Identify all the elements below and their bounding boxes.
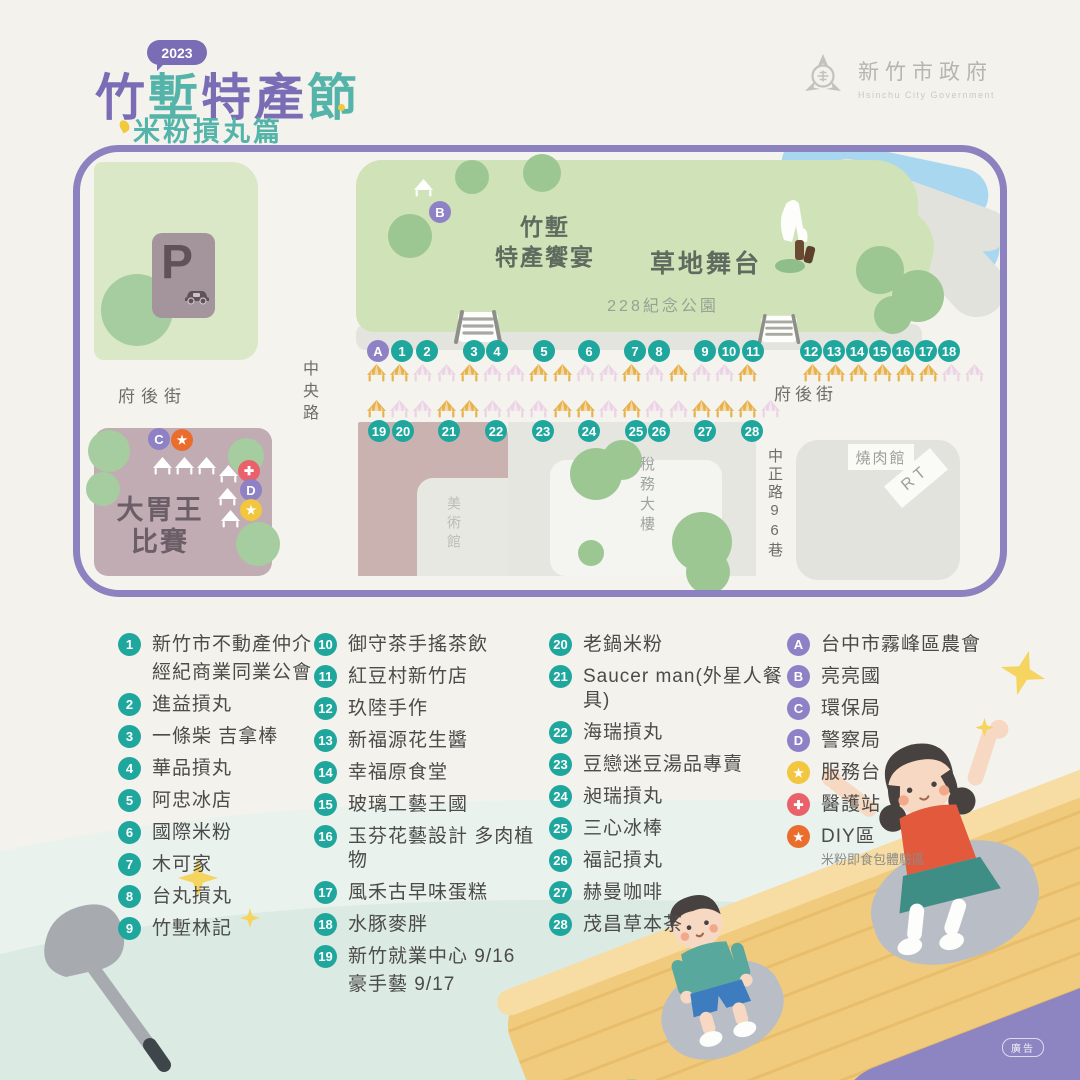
legend-column-3: 20老鍋米粉21Saucer man(外星人餐具)22海瑞摃丸23豆戀迷豆湯品專…	[549, 633, 789, 937]
legend-item-7: 7木可家	[118, 853, 324, 877]
star-icon: ★	[787, 825, 810, 848]
tent-icon	[825, 363, 846, 383]
legend-column-1: 1新竹市不動產仲介經紀商業同業公會2進益摃丸3一條柴 吉拿棒4華品摃丸5阿忠冰店…	[118, 633, 324, 941]
legend-item-★: ★DIY區米粉即食包體驗區	[787, 825, 1017, 867]
tent-icon	[941, 363, 962, 383]
map-marker-D: D	[240, 479, 262, 501]
legend-item-28: 28茂昌草本茶	[549, 913, 789, 937]
government-brand: 新竹市政府 Hsinchu City Government	[800, 52, 995, 103]
map-marker-19: 19	[368, 420, 390, 442]
map-marker-28: 28	[741, 420, 763, 442]
legend-sublabel: 米粉即食包體驗區	[821, 852, 925, 867]
legend-label: 進益摃丸	[152, 693, 232, 717]
legend-badge: 12	[314, 697, 337, 720]
legend-label: 昶瑞摃丸	[583, 785, 663, 809]
tent-icon	[366, 363, 387, 383]
legend-item-21: 21Saucer man(外星人餐具)	[549, 665, 789, 713]
tent-icon	[152, 456, 173, 476]
map-marker-A: A	[367, 340, 389, 362]
tent-icon	[598, 399, 619, 419]
legend-label: 玉芬花藝設計 多肉植物	[348, 825, 549, 873]
legend-label: 新竹市不動產仲介經紀商業同業公會	[152, 633, 312, 685]
legend-label: 紅豆村新竹店	[348, 665, 468, 689]
poster-canvas: 廣告 2023 竹塹特產節 米粉摃丸篇 新竹市政府 Hsinchu City G…	[0, 0, 1080, 1080]
legend-item-26: 26福記摃丸	[549, 849, 789, 873]
tent-icon	[872, 363, 893, 383]
legend-badge: 18	[314, 913, 337, 936]
tent-icon	[528, 399, 549, 419]
legend-label: 海瑞摃丸	[583, 721, 663, 745]
legend-item-11: 11紅豆村新竹店	[314, 665, 549, 689]
map-marker-4: 4	[486, 340, 508, 362]
map-marker-25: 25	[625, 420, 647, 442]
map-marker-26: 26	[648, 420, 670, 442]
tent-icon	[459, 363, 480, 383]
legend-item-3: 3一條柴 吉拿棒	[118, 725, 324, 749]
tent-icon	[691, 363, 712, 383]
tent-icon	[621, 363, 642, 383]
legend-label: 新竹就業中心 9/16豪手藝 9/17	[348, 945, 515, 997]
map-marker-B: B	[429, 201, 451, 223]
legend-item-14: 14幸福原食堂	[314, 761, 549, 785]
legend-item-9: 9竹塹林記	[118, 917, 324, 941]
legend-label: 台中市霧峰區農會	[821, 633, 981, 657]
tent-icon	[217, 487, 238, 507]
tent-icon	[389, 363, 410, 383]
legend-item-15: 15玻璃工藝王國	[314, 793, 549, 817]
legend-item-16: 16玉芬花藝設計 多肉植物	[314, 825, 549, 873]
tent-icon	[436, 363, 457, 383]
legend-label: 風禾古早味蛋糕	[348, 881, 488, 905]
legend-label: 服務台	[821, 761, 881, 785]
hsinchu-gov-logo-icon	[800, 52, 846, 103]
legend-badge: 15	[314, 793, 337, 816]
legend-item-★: ★服務台	[787, 761, 1017, 785]
tent-icon	[621, 399, 642, 419]
legend-badge: 20	[549, 633, 572, 656]
legend-item-23: 23豆戀迷豆湯品專賣	[549, 753, 789, 777]
legend-column-2: 10御守茶手搖茶飲11紅豆村新竹店12玖陸手作13新福源花生醬14幸福原食堂15…	[314, 633, 549, 997]
tent-icon	[760, 399, 781, 419]
legend-item-22: 22海瑞摃丸	[549, 721, 789, 745]
tent-icon	[668, 363, 689, 383]
map-marker-8: 8	[648, 340, 670, 362]
legend-badge: 19	[314, 945, 337, 968]
legend-item-8: 8台丸摃丸	[118, 885, 324, 909]
legend-label: 玻璃工藝王國	[348, 793, 468, 817]
legend-item-1: 1新竹市不動產仲介經紀商業同業公會	[118, 633, 324, 685]
tent-icon	[598, 363, 619, 383]
legend-item-C: C環保局	[787, 697, 1017, 721]
legend-badge: 5	[118, 789, 141, 812]
tent-icon	[505, 363, 526, 383]
legend-badge: 26	[549, 849, 572, 872]
ad-badge: 廣告	[1002, 1038, 1044, 1057]
legend-label: 福記摃丸	[583, 849, 663, 873]
tent-icon	[644, 363, 665, 383]
legend-label: 三心冰棒	[583, 817, 663, 841]
tent-icon	[505, 399, 526, 419]
map-marker-18: 18	[938, 340, 960, 362]
tent-icon	[714, 363, 735, 383]
legend-label-line2: 經紀商業同業公會	[152, 661, 312, 685]
legend-item-17: 17風禾古早味蛋糕	[314, 881, 549, 905]
legend-label: 台丸摃丸	[152, 885, 232, 909]
legend-label: 茂昌草本茶	[583, 913, 683, 937]
legend-badge: 14	[314, 761, 337, 784]
tent-icon	[482, 399, 503, 419]
legend-item-D: D警察局	[787, 729, 1017, 753]
gov-name: 新竹市政府	[858, 56, 995, 86]
legend-item-20: 20老鍋米粉	[549, 633, 789, 657]
legend-label: 幸福原食堂	[348, 761, 448, 785]
legend-badge: 22	[549, 721, 572, 744]
map-markers: A123456789101112131415161718192021222324…	[80, 152, 1000, 590]
map-marker-23: 23	[532, 420, 554, 442]
legend-badge: 11	[314, 665, 337, 688]
legend-badge: 3	[118, 725, 141, 748]
tent-icon	[196, 456, 217, 476]
map-marker-3: 3	[463, 340, 485, 362]
legend-item-13: 13新福源花生醬	[314, 729, 549, 753]
map-marker-27: 27	[694, 420, 716, 442]
map-marker-6: 6	[578, 340, 600, 362]
legend-label: 老鍋米粉	[583, 633, 663, 657]
tent-icon	[644, 399, 665, 419]
tent-icon	[412, 399, 433, 419]
legend-item-2: 2進益摃丸	[118, 693, 324, 717]
map-marker-17: 17	[915, 340, 937, 362]
legend-item-12: 12玖陸手作	[314, 697, 549, 721]
gov-name-en: Hsinchu City Government	[858, 90, 995, 100]
legend-label: 環保局	[821, 697, 881, 721]
legend-column-4: A台中市霧峰區農會B亮亮國C環保局D警察局★服務台✚醫護站★DIY區米粉即食包體…	[787, 633, 1017, 867]
legend-item-4: 4華品摃丸	[118, 757, 324, 781]
legend-badge: 24	[549, 785, 572, 808]
legend-badge: 23	[549, 753, 572, 776]
map-marker-15: 15	[869, 340, 891, 362]
legend-badge: 8	[118, 885, 141, 908]
legend-badge: 27	[549, 881, 572, 904]
map-marker-5: 5	[533, 340, 555, 362]
legend-label: 國際米粉	[152, 821, 232, 845]
subtitle-dot-icon	[338, 104, 345, 111]
legend-badge: 6	[118, 821, 141, 844]
legend-label: 木可家	[152, 853, 212, 877]
legend-badge: 9	[118, 917, 141, 940]
tent-icon	[436, 399, 457, 419]
legend-badge: 4	[118, 757, 141, 780]
tent-icon	[737, 363, 758, 383]
legend-item-5: 5阿忠冰店	[118, 789, 324, 813]
tent-icon	[412, 363, 433, 383]
legend-badge: 1	[118, 633, 141, 656]
legend-label: 警察局	[821, 729, 881, 753]
tent-icon	[218, 464, 239, 484]
legend-label: 醫護站	[821, 793, 881, 817]
medical-cross-icon: ✚	[787, 793, 810, 816]
map-marker-10: 10	[718, 340, 740, 362]
legend-label: 豆戀迷豆湯品專賣	[583, 753, 743, 777]
map-marker-16: 16	[892, 340, 914, 362]
map-marker-11: 11	[742, 340, 764, 362]
legend-badge: 21	[549, 665, 572, 688]
tent-icon	[389, 399, 410, 419]
tent-icon	[366, 399, 387, 419]
legend-item-6: 6國際米粉	[118, 821, 324, 845]
map-marker-9: 9	[694, 340, 716, 362]
legend-item-✚: ✚醫護站	[787, 793, 1017, 817]
tent-icon	[918, 363, 939, 383]
legend-label: 一條柴 吉拿棒	[152, 725, 278, 749]
map-marker-2: 2	[416, 340, 438, 362]
legend-item-27: 27赫曼咖啡	[549, 881, 789, 905]
map-marker-12: 12	[800, 340, 822, 362]
map-marker-20: 20	[392, 420, 414, 442]
map-marker-★: ★	[171, 429, 193, 451]
title-char: 節	[307, 70, 360, 126]
legend-badge: A	[787, 633, 810, 656]
tent-icon	[482, 363, 503, 383]
legend-badge: C	[787, 697, 810, 720]
legend-label: 亮亮國	[821, 665, 881, 689]
legend-label: 玖陸手作	[348, 697, 428, 721]
legend-badge: D	[787, 729, 810, 752]
map-marker-24: 24	[578, 420, 600, 442]
tent-icon	[895, 363, 916, 383]
legend-label: Saucer man(外星人餐具)	[583, 665, 789, 713]
tent-icon	[552, 363, 573, 383]
legend-badge: 10	[314, 633, 337, 656]
legend-label: DIY區米粉即食包體驗區	[821, 825, 925, 867]
legend-label: 華品摃丸	[152, 757, 232, 781]
legend-item-24: 24昶瑞摃丸	[549, 785, 789, 809]
legend-item-A: A台中市霧峰區農會	[787, 633, 1017, 657]
map-marker-1: 1	[391, 340, 413, 362]
tent-icon	[964, 363, 985, 383]
tent-icon	[802, 363, 823, 383]
tent-icon	[220, 509, 241, 529]
tent-icon	[552, 399, 573, 419]
tent-icon	[848, 363, 869, 383]
tent-icon	[575, 363, 596, 383]
legend-item-10: 10御守茶手搖茶飲	[314, 633, 549, 657]
map-marker-C: C	[148, 428, 170, 450]
map-marker-7: 7	[624, 340, 646, 362]
star-icon: ★	[787, 761, 810, 784]
legend-item-B: B亮亮國	[787, 665, 1017, 689]
legend-item-25: 25三心冰棒	[549, 817, 789, 841]
legend-badge: 7	[118, 853, 141, 876]
event-map: P	[73, 145, 1007, 597]
map-marker-★: ★	[240, 499, 262, 521]
legend-badge: 16	[314, 825, 337, 848]
map-marker-14: 14	[846, 340, 868, 362]
tent-icon	[691, 399, 712, 419]
legend-label: 竹塹林記	[152, 917, 232, 941]
tent-icon	[737, 399, 758, 419]
legend-label: 新福源花生醬	[348, 729, 468, 753]
tent-icon	[459, 399, 480, 419]
legend-item-18: 18水豚麥胖	[314, 913, 549, 937]
map-marker-13: 13	[823, 340, 845, 362]
page-subtitle: 米粉摃丸篇	[133, 110, 283, 149]
legend-badge: 17	[314, 881, 337, 904]
legend-badge: B	[787, 665, 810, 688]
legend-badge: 2	[118, 693, 141, 716]
map-marker-22: 22	[485, 420, 507, 442]
tent-icon	[413, 178, 434, 198]
legend-label: 阿忠冰店	[152, 789, 232, 813]
tent-icon	[668, 399, 689, 419]
legend-label: 赫曼咖啡	[583, 881, 663, 905]
tent-icon	[174, 456, 195, 476]
tent-icon	[575, 399, 596, 419]
legend-badge: 28	[549, 913, 572, 936]
map-marker-21: 21	[438, 420, 460, 442]
legend-label-line2: 豪手藝 9/17	[348, 973, 515, 997]
legend-item-19: 19新竹就業中心 9/16豪手藝 9/17	[314, 945, 549, 997]
legend-badge: 25	[549, 817, 572, 840]
legend-label: 水豚麥胖	[348, 913, 428, 937]
tent-icon	[528, 363, 549, 383]
legend-badge: 13	[314, 729, 337, 752]
tent-icon	[714, 399, 735, 419]
legend-label: 御守茶手搖茶飲	[348, 633, 488, 657]
